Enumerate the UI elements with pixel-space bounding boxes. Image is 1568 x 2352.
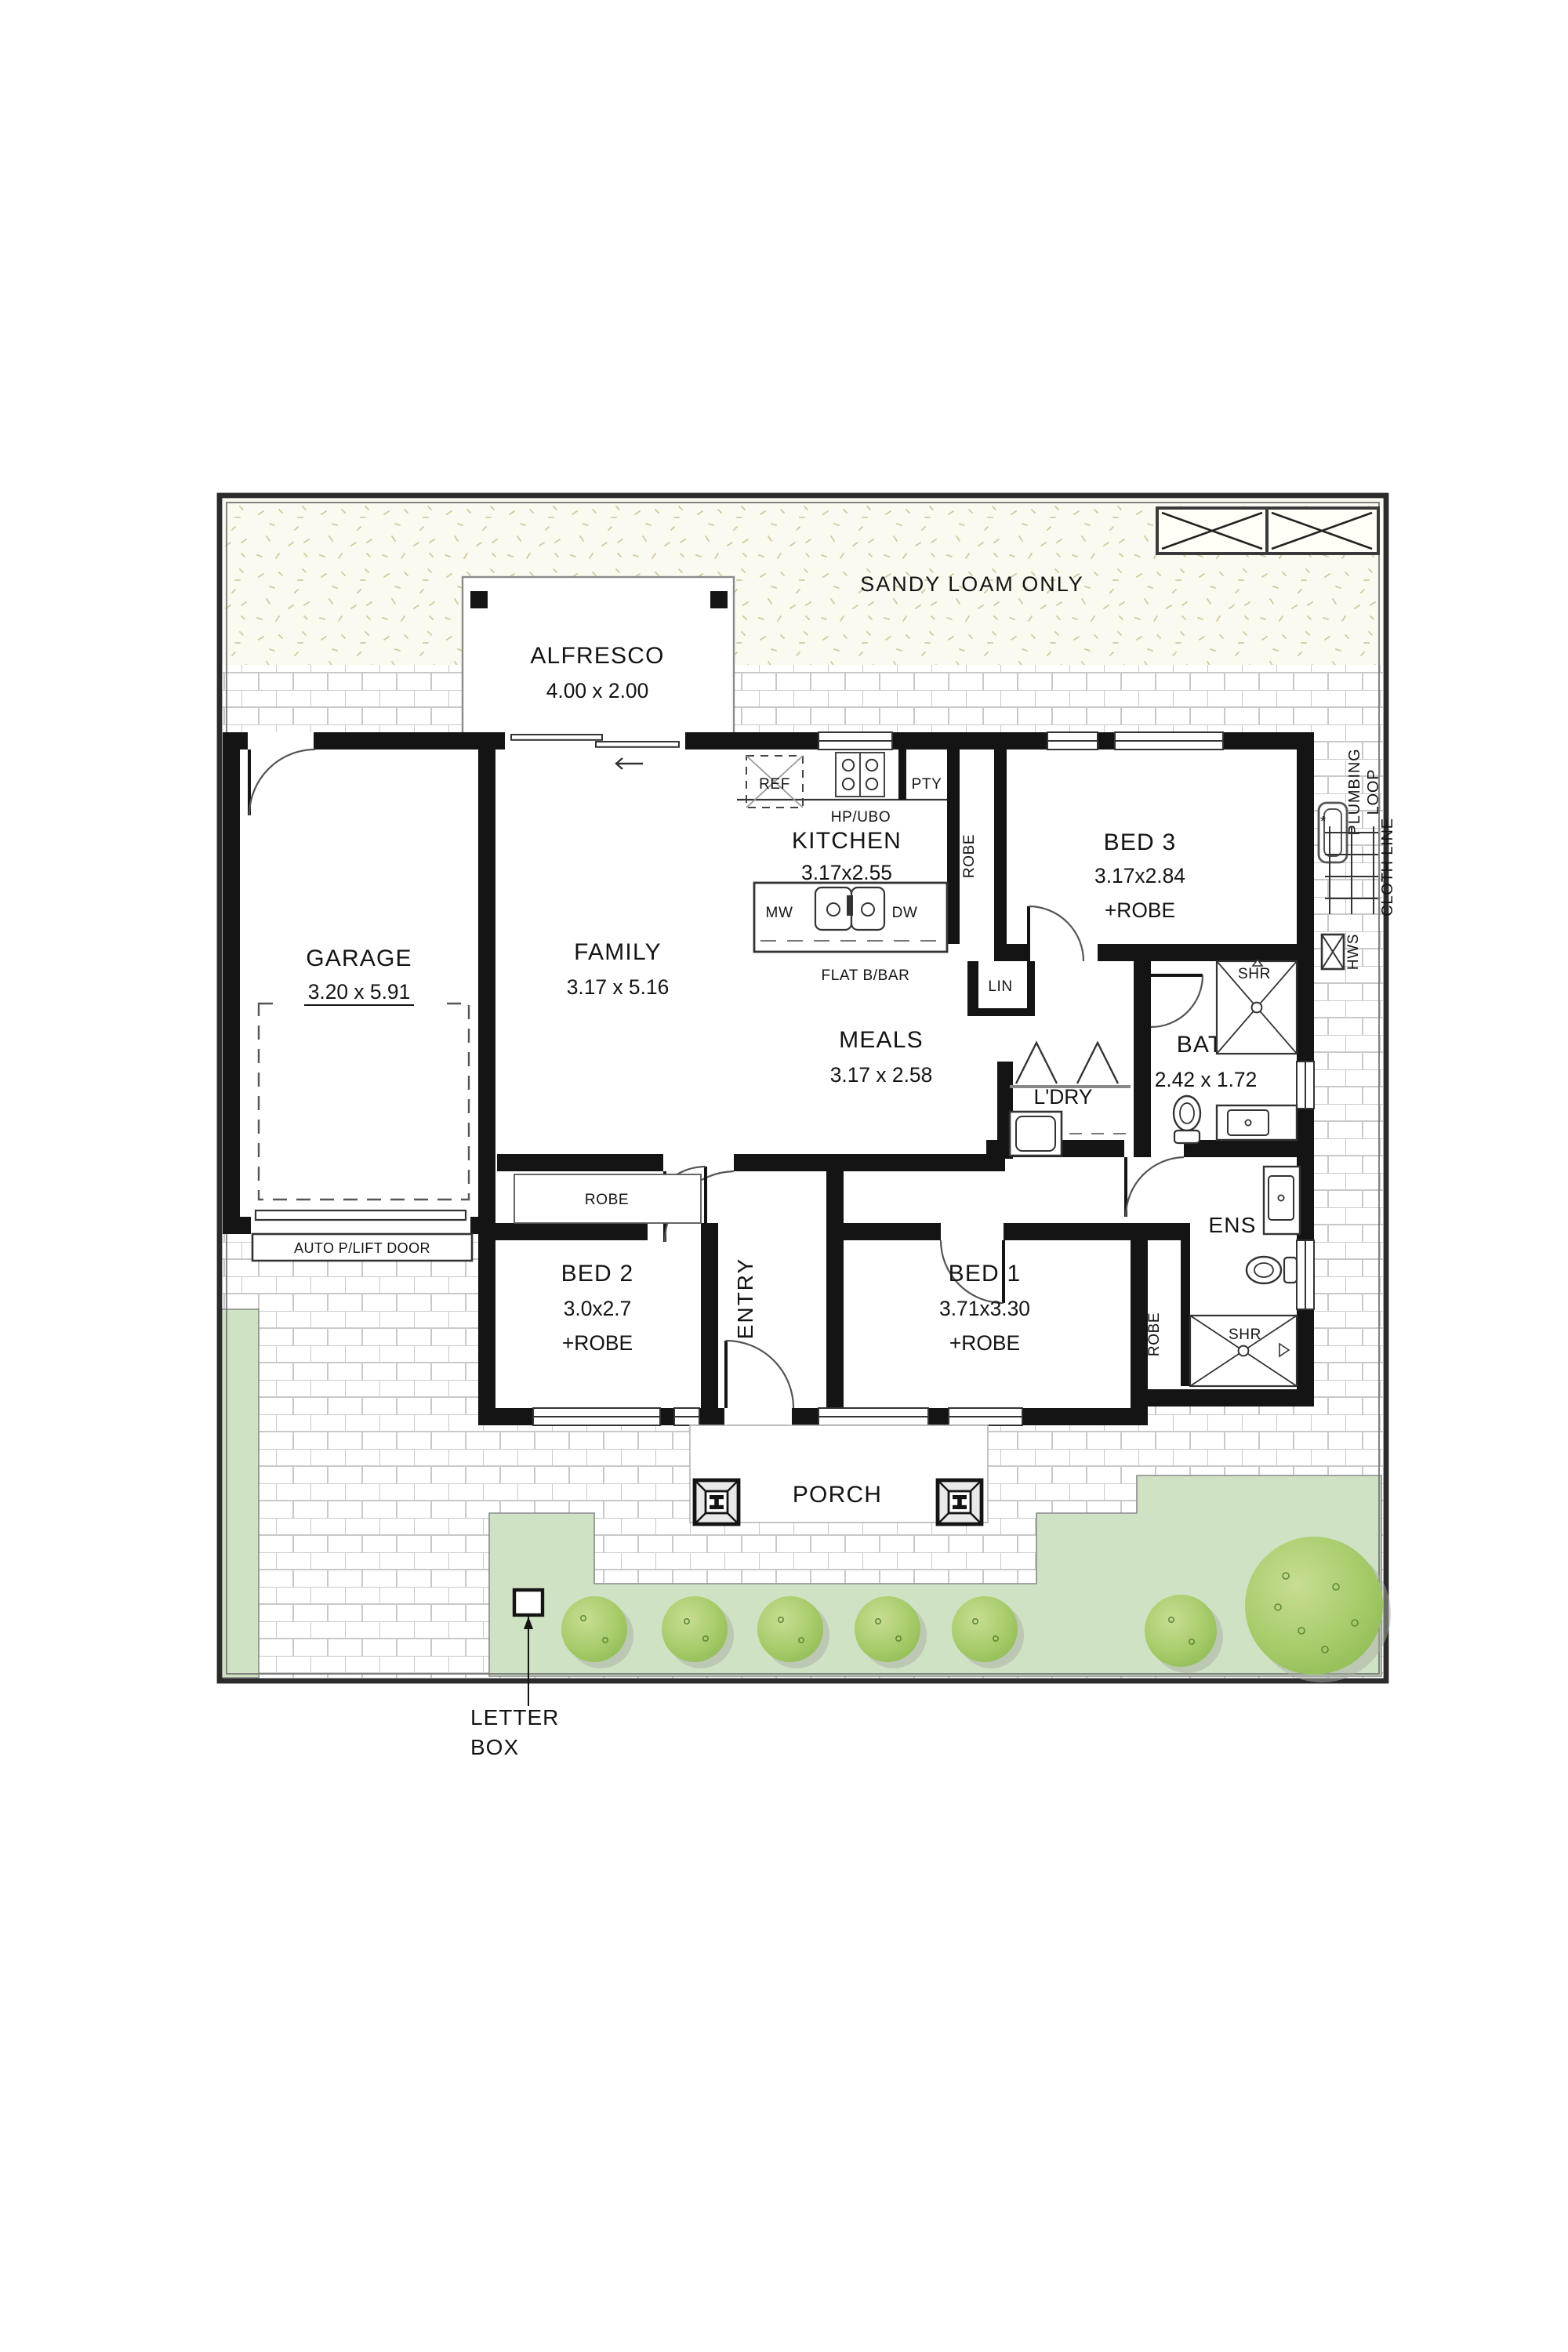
entry-label: ENTRY (733, 1258, 757, 1339)
porch-column-left (695, 1480, 739, 1524)
breakfast-bar-label: FLAT B/BAR (822, 967, 910, 984)
porch-label: PORCH (793, 1482, 882, 1508)
hall-window (1047, 732, 1098, 750)
bed1-dims: 3.71x3.30 (939, 1297, 1030, 1320)
floorplan-drawing: SANDY LOAM ONLY ALFRESCO 4.00 x 2.00 (0, 0, 1568, 2352)
floorplan-page: SANDY LOAM ONLY ALFRESCO 4.00 x 2.00 (0, 0, 1568, 2352)
svg-text:*: * (1320, 814, 1326, 829)
hws-label: HWS (1345, 934, 1362, 970)
dishwasher-label: DW (892, 905, 918, 921)
plumbing-loop-label2: LOOP (1365, 769, 1382, 815)
bath-dims: 2.42 x 1.72 (1155, 1068, 1258, 1091)
garage-rear-door-opening (248, 732, 314, 750)
fridge-label: REF (759, 776, 790, 793)
alfresco: ALFRESCO 4.00 x 2.00 (463, 577, 734, 734)
auto-door-label: AUTO P/LIFT DOOR (294, 1240, 430, 1256)
meals-label: MEALS (839, 1027, 924, 1053)
sliding-door-panel (511, 735, 602, 740)
sink-icon (815, 887, 884, 930)
alfresco-post-right (710, 591, 728, 608)
cooktop-label: HP/UBO (831, 809, 891, 826)
bush-large (1245, 1537, 1383, 1675)
bath-shower-label: SHR (1238, 966, 1271, 982)
bed3-robe-label: ROBE (961, 834, 978, 878)
bush (662, 1596, 728, 1662)
bush (561, 1596, 627, 1662)
bed3-dims: 3.17x2.84 (1094, 864, 1185, 887)
porch: PORCH (690, 1425, 988, 1524)
bed2-window (533, 1408, 660, 1425)
ens-shower-label: SHR (1229, 1327, 1261, 1343)
hws-icon (1322, 935, 1344, 969)
alfresco-dims: 4.00 x 2.00 (546, 679, 649, 702)
bush (855, 1596, 920, 1662)
bath-vanity (1217, 1105, 1297, 1140)
entry-sidelight-window (674, 1408, 699, 1425)
alfresco-post-left (470, 591, 488, 608)
porch-column-right (938, 1480, 982, 1524)
bed2-robe-note: +ROBE (562, 1331, 633, 1355)
pantry-label: PTY (912, 776, 942, 793)
laundry-trough (1010, 1112, 1062, 1156)
bed2-robe-label2: ROBE (585, 1192, 629, 1208)
ens-label: ENS (1208, 1213, 1256, 1237)
bush (1145, 1595, 1217, 1667)
garage-dims: 3.20 x 5.91 (308, 980, 411, 1004)
kitchen-label: KITCHEN (792, 828, 902, 854)
letterbox-label-line1: LETTER (470, 1705, 559, 1730)
ens-vanity (1264, 1167, 1300, 1234)
bed1-robe-label: ROBE (1146, 1312, 1163, 1356)
bed3-robe-note: +ROBE (1105, 898, 1175, 922)
ldry-label: L'DRY (1034, 1085, 1093, 1109)
bed1-label: BED 1 (949, 1261, 1022, 1287)
kitchen-dims: 3.17x2.55 (801, 861, 892, 884)
family-label: FAMILY (574, 939, 662, 965)
meals-dims: 3.17 x 2.58 (830, 1063, 933, 1087)
alfresco-label: ALFRESCO (530, 643, 664, 669)
sliding-door-panel (596, 742, 679, 747)
cloth-line-label: CLOTH LINE (1379, 818, 1396, 916)
bush (757, 1596, 823, 1662)
bed2-label: BED 2 (561, 1261, 634, 1287)
hall-front-window (818, 1408, 928, 1425)
front-door-opening (724, 1408, 792, 1425)
plumbing-loop-label1: PLUMBING (1346, 749, 1363, 836)
garage-label: GARAGE (306, 946, 412, 971)
ens-window (1297, 1240, 1314, 1309)
bed3-window (1115, 732, 1223, 750)
letterbox-icon (514, 1590, 543, 1615)
bath-window (1297, 1062, 1314, 1109)
bush (952, 1596, 1018, 1662)
bed2-dims: 3.0x2.7 (564, 1297, 632, 1320)
bath-toilet-icon (1174, 1096, 1200, 1143)
microwave-label: MW (766, 905, 793, 921)
bed1-window (949, 1408, 1022, 1425)
family-dims: 3.17 x 5.16 (567, 975, 670, 999)
linen-label: LIN (988, 978, 1012, 995)
sandy-loam-label: SANDY LOAM ONLY (860, 572, 1084, 596)
ens-toilet-icon (1247, 1257, 1297, 1283)
letterbox-label-line2: BOX (470, 1735, 519, 1759)
garage-door-panel (256, 1210, 466, 1220)
kitchen-window (818, 732, 892, 750)
fence-panel-marker (1157, 508, 1378, 554)
bed3-label: BED 3 (1104, 829, 1177, 855)
bed1-robe-note: +ROBE (949, 1331, 1020, 1355)
